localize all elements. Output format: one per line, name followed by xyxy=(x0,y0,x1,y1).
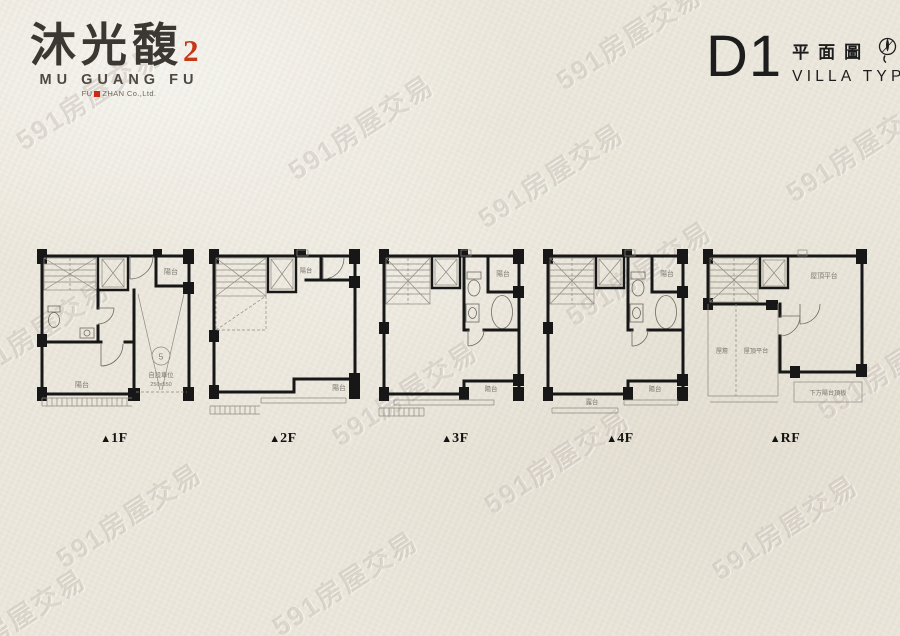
brand-logo-mark-icon xyxy=(94,91,100,97)
plan-type-label: 平面圖 xyxy=(792,38,870,63)
watermark: 591房屋交易 xyxy=(263,520,424,636)
roof-deck-label: 屋頂平台 xyxy=(744,347,769,355)
door-arcs xyxy=(468,330,484,346)
terrace-rail xyxy=(552,408,618,413)
floor-plan-3f: 陽台 陽台 xyxy=(376,246,528,424)
sink-icon xyxy=(630,304,643,322)
toilet-icon xyxy=(467,272,481,296)
balcony-rail xyxy=(394,400,494,405)
eave-label: 屋簷 xyxy=(716,347,728,355)
brand-company-right: ZHAN Co.,Ltd. xyxy=(102,89,156,98)
floor-label-1f: ▲1F xyxy=(74,429,154,447)
floor-label-rf: ▲RF xyxy=(745,429,825,447)
bottom-hatch xyxy=(210,406,260,414)
balcony-label: 陽台 xyxy=(332,383,346,392)
columns xyxy=(209,249,360,399)
toilet-icon xyxy=(48,306,60,328)
triangle-marker-icon: ▲ xyxy=(606,433,617,445)
balcony-label: 陽台 xyxy=(75,380,89,389)
stair-icon xyxy=(550,258,594,304)
door-arcs xyxy=(632,330,648,346)
balcony-label: 陽台 xyxy=(649,384,662,393)
triangle-marker-icon: ▲ xyxy=(770,433,781,445)
floor-label-3f: ▲3F xyxy=(415,429,495,447)
balcony-rail xyxy=(624,400,678,405)
brand-title-text: 沐光馥 xyxy=(30,20,183,71)
watermark: 591房屋交易 xyxy=(469,112,630,236)
floor-plan-2f: 陽台 陽台 xyxy=(206,246,364,424)
brand-title-suffix: 2 xyxy=(183,33,199,68)
bathtub-icon xyxy=(492,296,513,329)
triangle-marker-icon: ▲ xyxy=(100,433,111,445)
parking-number: 5 xyxy=(159,352,164,362)
floor-label-2f: ▲2F xyxy=(243,429,323,447)
toilet-icon xyxy=(631,272,645,296)
balcony-label: 陽台 xyxy=(660,269,674,278)
stair-icon xyxy=(44,258,96,290)
floor-plan-1f: 陽台 陽台 5 自設車位 250x550 xyxy=(34,246,198,424)
terrace-label: 露台 xyxy=(586,397,599,406)
watermark: 591房屋交易 xyxy=(0,558,93,636)
slab-note-label: 下方陽台頂板 xyxy=(809,389,846,397)
brand-company-left: FU xyxy=(82,89,93,98)
floor-name: 2F xyxy=(280,431,297,446)
villa-type-label: VILLA TYPE xyxy=(792,68,900,86)
door-arcs xyxy=(780,304,820,336)
bathtub-icon xyxy=(656,296,677,329)
triangle-marker-icon: ▲ xyxy=(441,433,452,445)
balcony-label: 陽台 xyxy=(164,267,178,276)
floor-name: RF xyxy=(781,431,801,446)
brand-logo: 沐光馥2 MU GUANG FU FUZHAN Co.,Ltd. xyxy=(30,22,208,98)
stair-icon xyxy=(386,258,430,304)
elevator-icon xyxy=(102,259,124,287)
sink-icon xyxy=(466,304,479,322)
floor-plan-4f: 陽台 陽台 露台 xyxy=(540,246,692,424)
stair-icon xyxy=(710,258,758,302)
watermark: 591房屋交易 xyxy=(703,464,864,588)
floor-name: 3F xyxy=(452,431,469,446)
triangle-marker-icon: ▲ xyxy=(269,433,280,445)
stair-icon xyxy=(216,258,266,330)
watermark: 591房屋交易 xyxy=(547,0,708,98)
watermark: 591房屋交易 xyxy=(777,86,900,210)
unit-header: D1 平面圖 VILLA TYPE xyxy=(706,30,900,86)
floor-plan-sheet: 591房屋交易 591房屋交易 591房屋交易 591房屋交易 591房屋交易 … xyxy=(0,0,900,636)
unit-code: D1 xyxy=(706,30,782,83)
balcony-rail xyxy=(261,398,346,403)
roof-deck-label: 屋頂平台 xyxy=(810,271,837,280)
sink-icon xyxy=(80,328,94,338)
balcony-label: 陽台 xyxy=(496,269,510,278)
parking-name: 自設車位 xyxy=(148,370,174,379)
bottom-hatch xyxy=(42,398,132,406)
floor-name: 1F xyxy=(111,431,128,446)
floor-label-4f: ▲4F xyxy=(580,429,660,447)
brand-company-line: FUZHAN Co.,Ltd. xyxy=(30,89,208,98)
parking-size: 250x550 xyxy=(150,382,171,388)
north-compass-icon xyxy=(877,35,898,65)
brand-subtitle: MU GUANG FU xyxy=(30,72,208,88)
floor-name: 4F xyxy=(617,431,634,446)
balcony-label: 陽台 xyxy=(485,384,498,393)
balcony-label: 陽台 xyxy=(300,266,313,275)
bottom-hatch xyxy=(379,408,424,416)
floor-plan-rf: 屋頂平台 屋簷 屋頂平台 下方陽台頂板 xyxy=(700,246,872,424)
watermark: 591房屋交易 xyxy=(279,64,440,188)
brand-title: 沐光馥2 xyxy=(30,22,208,70)
door-arcs xyxy=(98,256,153,366)
door-arcs xyxy=(323,258,344,279)
